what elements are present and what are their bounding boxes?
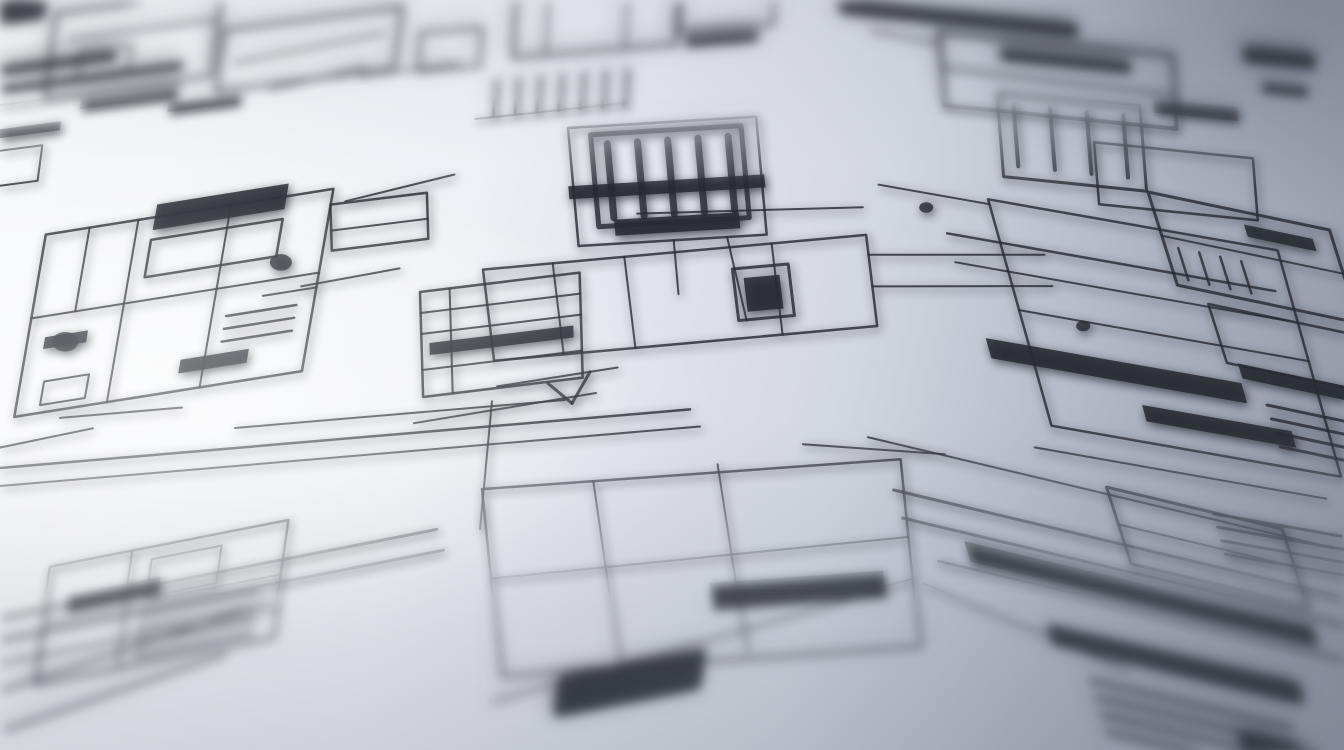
blueprint-photo — [0, 0, 1344, 750]
blueprint-canvas-sharp — [0, 0, 1344, 750]
blueprint-drawing — [0, 0, 1344, 750]
focus-layer — [0, 0, 1344, 750]
